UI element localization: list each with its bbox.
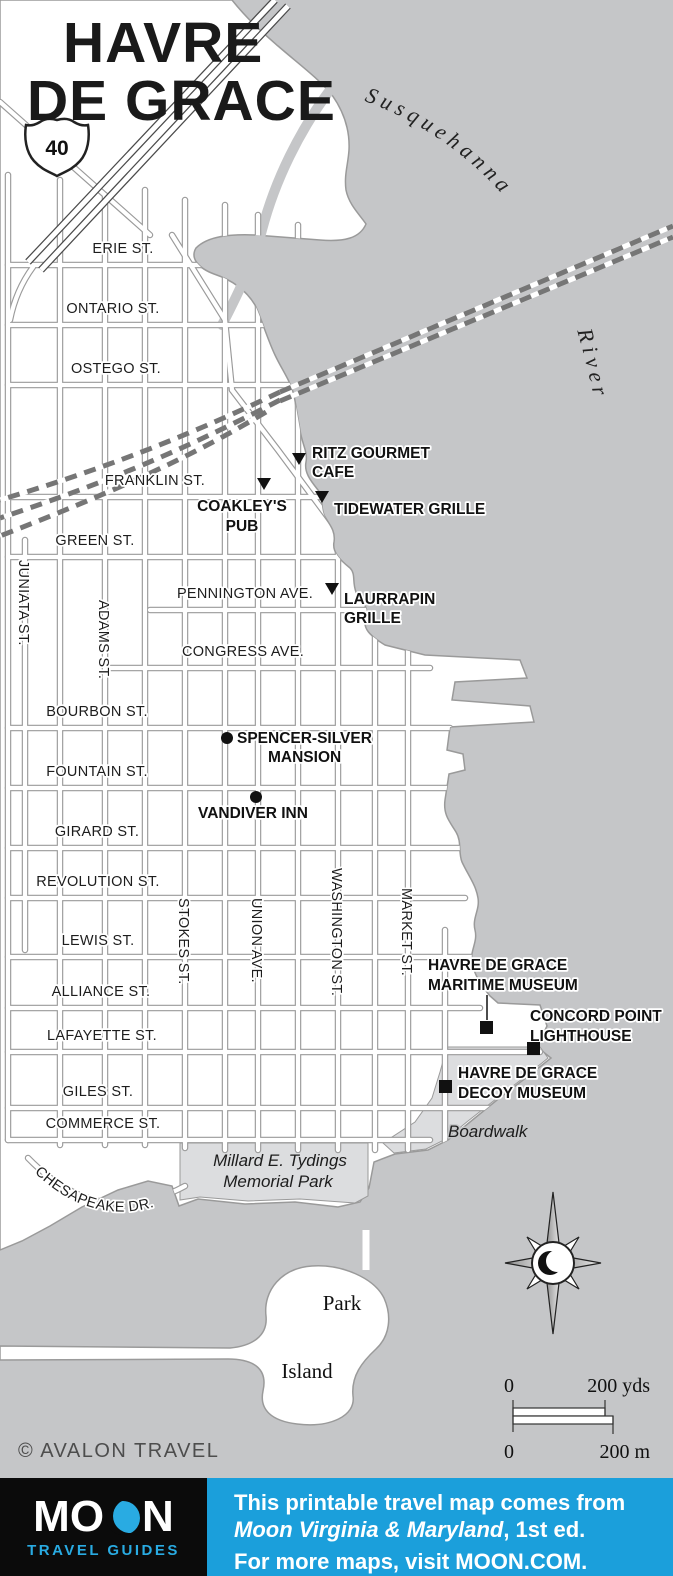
street-label: WASHINGTON ST. [328, 868, 344, 996]
scale-meters: 200 m [599, 1441, 650, 1463]
poi-label: DECOY MUSEUM [458, 1085, 586, 1102]
lodging-marker-icon [221, 732, 233, 744]
street-label: ALLIANCE ST. [52, 984, 151, 1000]
poi-label: HAVRE DE GRACE [458, 1065, 597, 1082]
tydings-park-label: Memorial Park [223, 1172, 334, 1191]
logo-letter-n: N [142, 1495, 174, 1539]
street-label: PENNINGTON AVE. [177, 586, 313, 602]
street-label: REVOLUTION ST. [36, 874, 159, 890]
street-label: LEWIS ST. [62, 933, 135, 949]
title-line1: HAVRE [63, 11, 263, 75]
poi-label: MARITIME MUSEUM [428, 977, 578, 994]
park-island-label: Island [281, 1359, 333, 1383]
street-label: ONTARIO ST. [66, 301, 159, 317]
scale-zero-bottom: 0 [504, 1441, 514, 1463]
park-island-label: Park [323, 1291, 362, 1315]
street-label: FOUNTAIN ST. [46, 764, 148, 780]
street-label: BOURBON ST. [46, 704, 148, 720]
printable-map-page: 40 Susquehanna River CHESAPEAKE DR. ERIE… [0, 0, 673, 1576]
street-label: GILES ST. [63, 1084, 133, 1100]
street-label: GREEN ST. [55, 533, 134, 549]
street-label: UNION AVE. [248, 898, 264, 983]
poi-label: VANDIVER INN [198, 805, 308, 822]
footer-book-title: Moon Virginia & Maryland [234, 1517, 503, 1542]
street-label: JUNIATA ST. [15, 560, 31, 646]
poi-label: PUB [226, 518, 259, 535]
street-label: ADAMS ST. [95, 600, 111, 679]
scale-zero-top: 0 [504, 1375, 514, 1397]
poi-label: LIGHTHOUSE [530, 1028, 632, 1045]
poi-label: CONCORD POINT [530, 1008, 662, 1025]
street-label: GIRARD ST. [55, 824, 139, 840]
footer-message: This printable travel map comes from Moo… [207, 1478, 673, 1576]
boardwalk-label: Boardwalk [448, 1122, 529, 1141]
logo-letter-m: M [33, 1495, 70, 1539]
moon-logo: MON TRAVEL GUIDES [0, 1478, 207, 1576]
poi-label: SPENCER-SILVER [237, 730, 372, 747]
title-line2: DE GRACE [27, 69, 336, 133]
street-label: STOKES ST. [175, 898, 191, 985]
crescent-moon-logo-icon [105, 1500, 141, 1536]
street-label: MARKET ST. [398, 888, 414, 976]
copyright-text: © AVALON TRAVEL [18, 1440, 219, 1462]
poi-label: GRILLE [344, 610, 401, 627]
footer-bar: MON TRAVEL GUIDES This printable travel … [0, 1478, 673, 1576]
route-40-label: 40 [45, 137, 68, 160]
street-label: ERIE ST. [92, 241, 153, 257]
scale-yards: 200 yds [587, 1375, 650, 1397]
logo-letter-o: O [70, 1495, 104, 1539]
tydings-park-label: Millard E. Tydings [213, 1151, 347, 1170]
poi-label: MANSION [268, 749, 341, 766]
logo-subtitle: TRAVEL GUIDES [27, 1542, 180, 1559]
poi-label: LAURRAPIN [344, 591, 435, 608]
footer-line3[interactable]: For more maps, visit MOON.COM. [234, 1548, 673, 1575]
poi-label: RITZ GOURMET [312, 445, 430, 462]
street-label: CONGRESS AVE. [182, 644, 304, 660]
sight-marker-icon [527, 1042, 540, 1055]
map-canvas: 40 Susquehanna River CHESAPEAKE DR. ERIE… [0, 0, 673, 1478]
moon-logo-word: MON [33, 1495, 174, 1539]
sight-marker-icon [480, 1021, 493, 1034]
poi-label: TIDEWATER GRILLE [334, 501, 485, 518]
poi-label: HAVRE DE GRACE [428, 957, 567, 974]
lodging-marker-icon [250, 791, 262, 803]
street-label: FRANKLIN ST. [105, 473, 205, 489]
footer-line1: This printable travel map comes from [234, 1489, 673, 1516]
footer-line2: Moon Virginia & Maryland, 1st ed. [234, 1516, 673, 1543]
poi-label: COAKLEY'S [197, 498, 287, 515]
poi-label: CAFE [312, 464, 354, 481]
street-label: COMMERCE ST. [46, 1116, 161, 1132]
footer-edition: , 1st ed. [503, 1517, 585, 1542]
street-label: LAFAYETTE ST. [47, 1028, 157, 1044]
street-label: OSTEGO ST. [71, 361, 161, 377]
sight-marker-icon [439, 1080, 452, 1093]
